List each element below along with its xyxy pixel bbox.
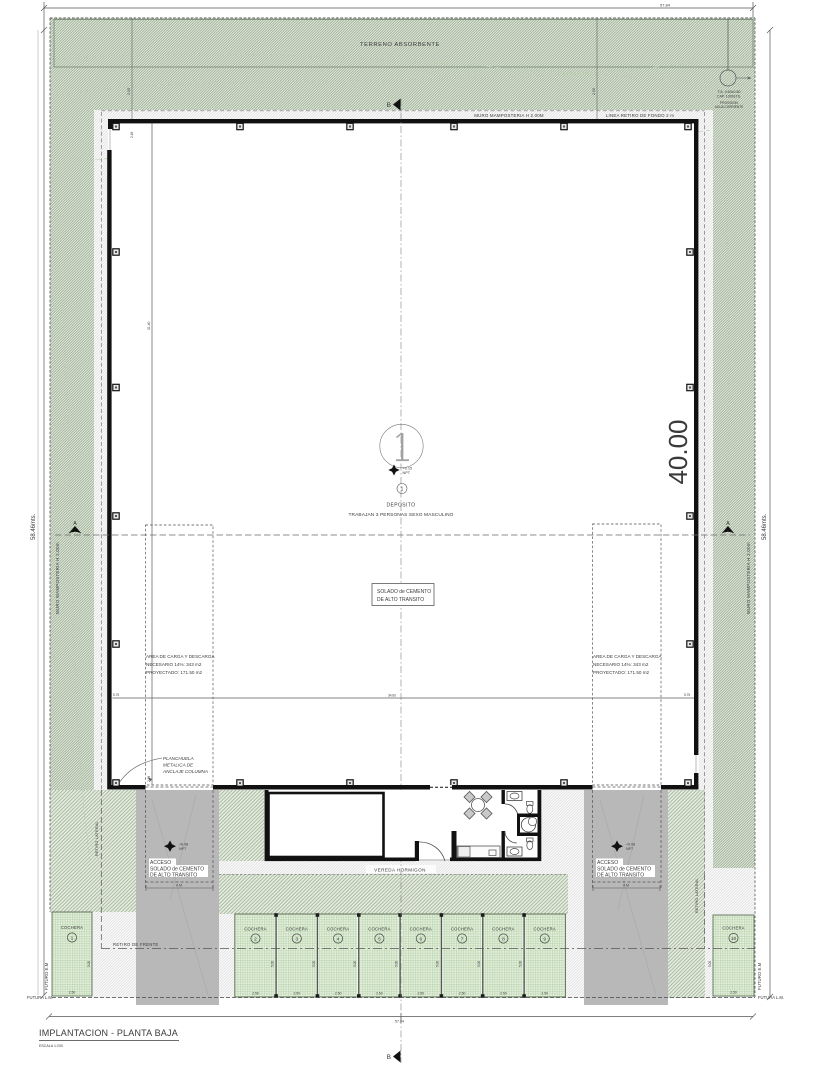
svg-text:5.00: 5.00 <box>436 961 440 967</box>
svg-text:MURO MAMPOSTERIA H 2.00m: MURO MAMPOSTERIA H 2.00m <box>55 542 60 614</box>
svg-text:ANCLAJE COLUMNA: ANCLAJE COLUMNA <box>162 769 208 774</box>
svg-text:31.40: 31.40 <box>147 321 151 330</box>
svg-text:DE ALTO TRANSITO: DE ALTO TRANSITO <box>597 873 644 879</box>
svg-text:B: B <box>387 1054 391 1061</box>
svg-text:COCHERA: COCHERA <box>327 927 349 932</box>
svg-text:57.84: 57.84 <box>395 1020 404 1024</box>
svg-text:5.00: 5.00 <box>271 961 275 967</box>
svg-text:COCHERA: COCHERA <box>286 927 308 932</box>
svg-text:NPT: NPT <box>403 471 411 475</box>
svg-text:A: A <box>726 521 730 527</box>
svg-text:ACCESO: ACCESO <box>597 860 618 866</box>
svg-text:FUTURA L.M.: FUTURA L.M. <box>758 995 784 1000</box>
svg-text:5.00: 5.00 <box>518 961 522 967</box>
svg-text:2.50: 2.50 <box>335 992 342 996</box>
svg-text:RETIRO LATERAL: RETIRO LATERAL <box>95 821 99 856</box>
svg-text:TRABAJAN 3 PERSONAS SEXO MASCU: TRABAJAN 3 PERSONAS SEXO MASCULINO <box>349 512 454 518</box>
svg-text:5.75: 5.75 <box>684 693 690 697</box>
svg-text:VEREDA HORMIGON: VEREDA HORMIGON <box>374 868 426 873</box>
svg-text:5.00: 5.00 <box>394 961 398 967</box>
svg-text:FUTURA L.M.: FUTURA L.M. <box>27 995 53 1000</box>
svg-text:4 M: 4 M <box>623 884 629 888</box>
svg-text:A: A <box>73 521 77 527</box>
svg-text:ESCALA 1:200: ESCALA 1:200 <box>39 1044 63 1048</box>
svg-text:NPT: NPT <box>179 847 187 851</box>
svg-text:COCHERA: COCHERA <box>244 927 266 932</box>
svg-text:5.00: 5.00 <box>353 961 357 967</box>
svg-text:CAP. 1000LTS.: CAP. 1000LTS. <box>717 95 741 99</box>
svg-text:COCHERA: COCHERA <box>368 927 390 932</box>
svg-text:5.00: 5.00 <box>708 961 712 967</box>
svg-text:34.60: 34.60 <box>388 694 396 698</box>
svg-text:NECESARIO 14%: 343 m2: NECESARIO 14%: 343 m2 <box>146 662 202 667</box>
svg-text:AGUA CORRIENTE: AGUA CORRIENTE <box>715 105 744 109</box>
svg-text:2: 2 <box>254 937 257 943</box>
svg-text:FUTURO E.M: FUTURO E.M <box>757 962 762 990</box>
svg-text:DE ALTO TRANSITO: DE ALTO TRANSITO <box>377 597 424 603</box>
svg-text:COCHERA: COCHERA <box>492 927 514 932</box>
svg-text:2.18: 2.18 <box>130 132 134 138</box>
svg-text:B: B <box>387 102 391 109</box>
svg-text:IMPLANTACION - PLANTA BAJA: IMPLANTACION - PLANTA BAJA <box>39 1028 178 1038</box>
svg-text:5.75: 5.75 <box>113 693 119 697</box>
svg-text:AREA DE CARGA Y DESCARGA: AREA DE CARGA Y DESCARGA <box>593 654 662 659</box>
svg-text:COCHERA: COCHERA <box>61 925 83 930</box>
svg-text:58.46mts.: 58.46mts. <box>31 513 37 540</box>
svg-text:COCHERA: COCHERA <box>534 927 556 932</box>
svg-text:RETIRO DE FRENTE: RETIRO DE FRENTE <box>113 942 159 947</box>
svg-text:4 M: 4 M <box>176 884 182 888</box>
svg-text:5.00: 5.00 <box>312 961 316 967</box>
svg-text:DE ALTO TRANSITO: DE ALTO TRANSITO <box>150 873 197 879</box>
svg-text:2.50: 2.50 <box>459 992 466 996</box>
svg-text:58.46mts.: 58.46mts. <box>762 513 768 540</box>
svg-text:2.50: 2.50 <box>376 992 383 996</box>
svg-text:DEPOSITO: DEPOSITO <box>387 503 416 509</box>
svg-text:COCHERA: COCHERA <box>451 927 473 932</box>
svg-text:T.A. 0.60x0.60: T.A. 0.60x0.60 <box>718 90 741 94</box>
svg-text:2.50: 2.50 <box>293 992 300 996</box>
svg-text:PROYECTADO: 171.50 m2: PROYECTADO: 171.50 m2 <box>146 670 203 675</box>
svg-text:10: 10 <box>731 936 737 942</box>
svg-text:PLANCHUELA: PLANCHUELA <box>163 756 194 761</box>
svg-text:2.50: 2.50 <box>252 992 259 996</box>
svg-text:1: 1 <box>401 487 404 493</box>
svg-text:2.50: 2.50 <box>417 992 424 996</box>
svg-text:COCHERA: COCHERA <box>410 927 432 932</box>
svg-text:5.00: 5.00 <box>87 961 91 967</box>
svg-text:TERRENO ABSORBENTE: TERRENO ABSORBENTE <box>360 42 440 48</box>
svg-text:2.50: 2.50 <box>69 991 76 995</box>
svg-text:2.50: 2.50 <box>730 991 737 995</box>
svg-text:57.84: 57.84 <box>660 3 671 8</box>
svg-text:ACCESO: ACCESO <box>150 860 171 866</box>
svg-text:COCHERA: COCHERA <box>722 926 744 931</box>
svg-text:5.00: 5.00 <box>477 961 481 967</box>
svg-text:RETIRO LATERAL: RETIRO LATERAL <box>695 878 699 913</box>
svg-text:AREA DE CARGA Y DESCARGA: AREA DE CARGA Y DESCARGA <box>146 654 215 659</box>
svg-text:4: 4 <box>337 937 340 943</box>
svg-text:2.50: 2.50 <box>500 992 507 996</box>
svg-text:2.00: 2.00 <box>127 88 131 95</box>
svg-text:1: 1 <box>71 936 74 942</box>
svg-text:SOLADO de CEMENTO: SOLADO de CEMENTO <box>377 589 431 595</box>
svg-text:3: 3 <box>295 937 298 943</box>
svg-text:5: 5 <box>378 937 381 943</box>
svg-text:2.00: 2.00 <box>592 88 596 95</box>
svg-text:MURO MAMPOSTERIA H 2.00M: MURO MAMPOSTERIA H 2.00M <box>474 113 544 118</box>
svg-text:40.00: 40.00 <box>663 419 693 484</box>
svg-text:NPT: NPT <box>626 847 634 851</box>
svg-text:2.50: 2.50 <box>541 992 548 996</box>
svg-text:FUTURO E.M: FUTURO E.M <box>44 962 49 990</box>
svg-text:MURO MAMPOSTERIA H 2.00m: MURO MAMPOSTERIA H 2.00m <box>746 542 751 614</box>
svg-text:6: 6 <box>419 937 422 943</box>
svg-text:LINEA RETIRO DE FONDO 2 m: LINEA RETIRO DE FONDO 2 m <box>606 113 674 118</box>
svg-text:NECESARIO 14%: 343 m2: NECESARIO 14%: 343 m2 <box>593 662 649 667</box>
svg-text:PROYECTADO: 171.50 m2: PROYECTADO: 171.50 m2 <box>593 670 650 675</box>
svg-text:METALICA DE: METALICA DE <box>163 763 194 768</box>
svg-text:8: 8 <box>502 937 505 943</box>
svg-text:9: 9 <box>543 937 546 943</box>
svg-text:7: 7 <box>461 937 464 943</box>
